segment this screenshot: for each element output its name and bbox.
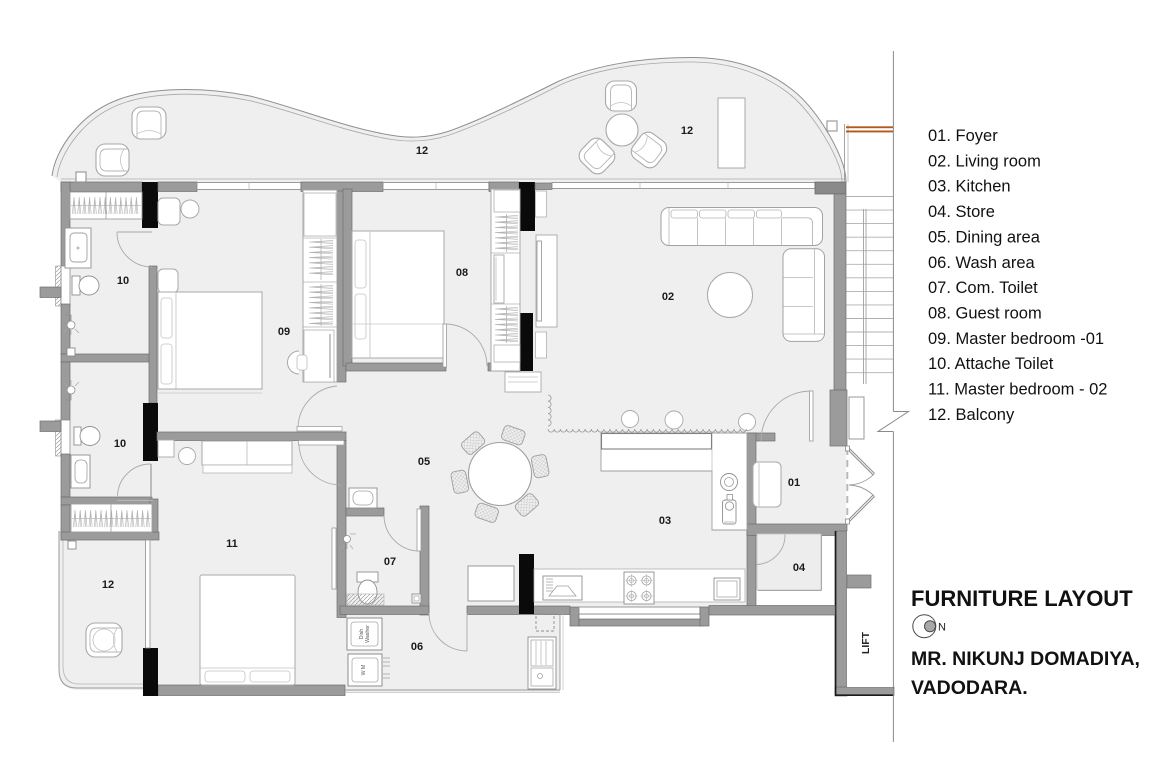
svg-text:12: 12: [416, 145, 428, 157]
svg-text:11. Master bedroom - 02: 11. Master bedroom - 02: [928, 381, 1107, 399]
svg-text:02: 02: [662, 291, 674, 303]
svg-text:03. Kitchen: 03. Kitchen: [928, 178, 1011, 196]
svg-text:10: 10: [114, 438, 126, 450]
svg-text:08: 08: [456, 267, 468, 279]
svg-text:07: 07: [384, 556, 396, 568]
svg-text:FURNITURE LAYOUT: FURNITURE LAYOUT: [911, 586, 1133, 611]
svg-text:09. Master bedroom -01: 09. Master bedroom -01: [928, 330, 1104, 348]
svg-text:04: 04: [793, 562, 806, 574]
svg-text:06. Wash area: 06. Wash area: [928, 254, 1036, 272]
svg-text:12. Balcony: 12. Balcony: [928, 406, 1015, 424]
svg-text:07. Com. Toilet: 07. Com. Toilet: [928, 279, 1038, 297]
svg-text:03: 03: [659, 515, 671, 527]
svg-text:VADODARA.: VADODARA.: [911, 677, 1028, 699]
svg-text:MR. NIKUNJ DOMADIYA,: MR. NIKUNJ DOMADIYA,: [911, 648, 1140, 670]
svg-text:12: 12: [102, 579, 114, 591]
svg-text:01: 01: [788, 477, 800, 489]
svg-text:LIFT: LIFT: [860, 631, 872, 654]
svg-text:10. Attache Toilet: 10. Attache Toilet: [928, 355, 1054, 373]
svg-text:01. Foyer: 01. Foyer: [928, 127, 998, 145]
svg-text:02. Living room: 02. Living room: [928, 152, 1041, 170]
svg-text:05. Dining area: 05. Dining area: [928, 228, 1041, 246]
svg-text:06: 06: [411, 641, 423, 653]
svg-text:12: 12: [681, 125, 693, 137]
svg-text:11: 11: [226, 538, 238, 550]
svg-text:10: 10: [117, 275, 129, 287]
svg-text:N: N: [938, 622, 946, 634]
svg-text:04. Store: 04. Store: [928, 203, 995, 221]
svg-text:08. Guest room: 08. Guest room: [928, 305, 1042, 323]
svg-text:W M: W M: [361, 665, 367, 676]
svg-text:05: 05: [418, 456, 430, 468]
svg-text:09: 09: [278, 326, 290, 338]
